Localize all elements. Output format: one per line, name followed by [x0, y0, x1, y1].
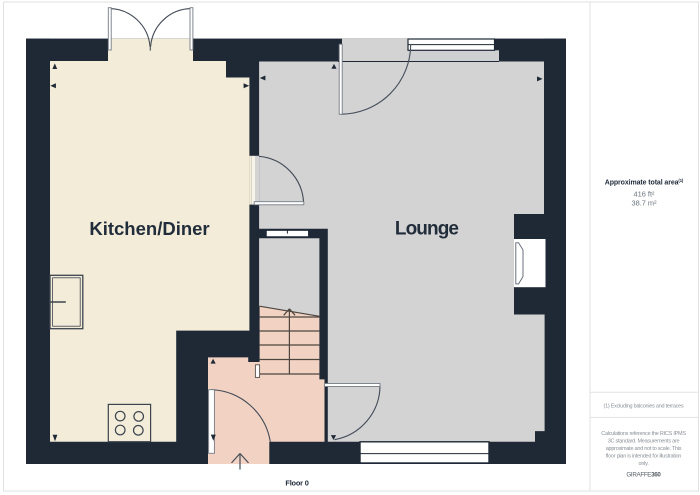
svg-text:3C standard. Measurements are: 3C standard. Measurements are [608, 438, 680, 444]
svg-text:(1) Excluding balconies and te: (1) Excluding balconies and terraces [604, 403, 684, 409]
svg-text:only.: only. [639, 461, 650, 467]
svg-text:38.7 m²: 38.7 m² [631, 199, 657, 208]
svg-text:Calculations reference the RIC: Calculations reference the RICS IPMS [601, 431, 686, 437]
svg-text:Floor 0: Floor 0 [285, 479, 308, 488]
svg-text:Approximate total area(1): Approximate total area(1) [605, 178, 684, 187]
svg-text:Lounge: Lounge [395, 218, 459, 239]
svg-text:Kitchen/Diner: Kitchen/Diner [89, 218, 209, 239]
svg-text:416 ft²: 416 ft² [634, 190, 655, 199]
svg-text:GIRAFFE360: GIRAFFE360 [626, 472, 661, 479]
svg-text:floor plan is intended for ill: floor plan is intended for illustration [606, 453, 681, 459]
svg-text:approximate and not to scale.: approximate and not to scale. This [606, 446, 682, 452]
